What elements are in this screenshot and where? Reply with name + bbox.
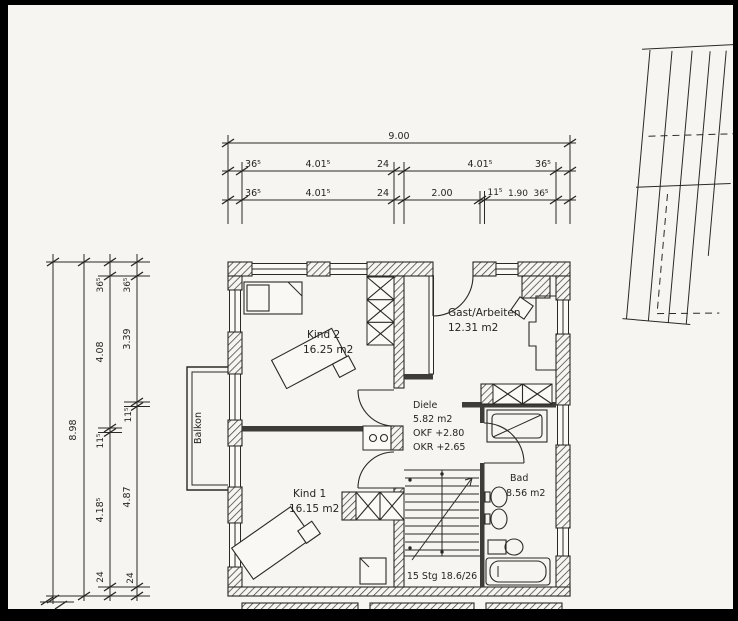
balcony-door: [230, 374, 241, 420]
dim-label: 24: [377, 159, 389, 170]
dim-label: 4.01⁵: [306, 188, 331, 199]
room-area: 5.82 m2: [413, 414, 452, 425]
room-area: 16.15 m2: [289, 503, 339, 515]
window: [230, 446, 241, 487]
wall-segment: [367, 262, 433, 276]
room-okr: OKR +2.65: [413, 442, 465, 453]
radiator-shaft: [363, 426, 403, 450]
wall-segment: [556, 445, 570, 528]
dim-label: 11⁵: [124, 407, 134, 422]
wall-segment: [228, 420, 242, 446]
dim-label: 36⁵: [245, 159, 261, 170]
wall-pillar: [522, 276, 550, 298]
dim-label: 4.18⁵: [95, 497, 106, 522]
window: [252, 264, 307, 275]
dim-label: 36⁵: [245, 188, 261, 199]
wardrobe-gast: [481, 384, 552, 404]
dim-label: 36⁵: [533, 189, 548, 199]
wall-segment: [228, 276, 242, 290]
room-area: 8.56 m2: [506, 488, 545, 499]
chimney-shaft: [367, 277, 394, 345]
wall-segment: [556, 334, 570, 405]
dim-label: 36⁵: [535, 159, 551, 170]
balcony-label: Balkon: [193, 412, 204, 444]
room-okf: OKF +2.80: [413, 428, 464, 439]
wall-segment: [473, 262, 496, 276]
dim-label: 4.87: [122, 486, 133, 507]
wall-segment: [228, 262, 252, 276]
wall-segment: [394, 488, 404, 492]
dim-label: 24: [96, 571, 106, 583]
floor-plan-scan: 9.00 36⁵ 4.01⁵ 24 4.01⁵ 36⁵ 36⁵ 4.01⁵ 24…: [0, 0, 738, 621]
wall-segment: [518, 262, 570, 276]
window: [496, 264, 518, 275]
window: [558, 300, 569, 334]
room-name: Kind 1: [293, 488, 326, 500]
window: [558, 405, 569, 445]
wall-segment: [228, 487, 242, 523]
dim-total-depth: 8.98: [68, 419, 79, 440]
room-name: Bad: [510, 473, 528, 484]
dim-label: 4.01⁵: [468, 159, 493, 170]
wall-segment: [404, 374, 433, 380]
dim-label: 4.01⁵: [306, 159, 331, 170]
dim-label: 11⁵: [96, 433, 106, 448]
dim-label: 1.90: [508, 189, 528, 199]
dim-total-width: 9.00: [388, 131, 409, 142]
dim-label: 24: [377, 188, 389, 199]
wall-segment: [307, 262, 330, 276]
dim-label: 4.08: [95, 341, 106, 362]
dim-label: 24: [126, 572, 136, 584]
room-area: 16.25 m2: [303, 344, 353, 356]
side-table-kind1: [360, 558, 386, 584]
room-name: Kind 2: [307, 329, 340, 341]
wall-segment: [394, 276, 404, 388]
dim-label: 11⁵: [487, 188, 502, 198]
window: [230, 290, 241, 332]
dim-label: 3.39: [122, 328, 133, 349]
room-name: Gast/Arbeiten: [448, 307, 520, 319]
wall-segment: [394, 520, 404, 587]
wall-segment: [480, 463, 485, 587]
wall-segment: [480, 407, 485, 423]
room-area: 12.31 m2: [448, 322, 498, 334]
dim-label: 36⁵: [96, 277, 106, 292]
window: [330, 264, 367, 275]
wardrobe-kind1: [342, 492, 404, 520]
wall-segment: [556, 276, 570, 300]
dim-label: 36⁵: [123, 277, 133, 292]
wall-segment: [228, 587, 570, 596]
dim-label: 2.00: [431, 188, 452, 199]
stairs-label: 15 Stg 18.6/26: [407, 571, 477, 582]
scanned-floor-plan-page: 9.00 36⁵ 4.01⁵ 24 4.01⁵ 36⁵ 36⁵ 4.01⁵ 24…: [0, 0, 738, 621]
room-name: Diele: [413, 400, 437, 411]
wall-segment: [228, 332, 242, 374]
bed-kind2: [244, 282, 302, 314]
window: [558, 528, 569, 556]
